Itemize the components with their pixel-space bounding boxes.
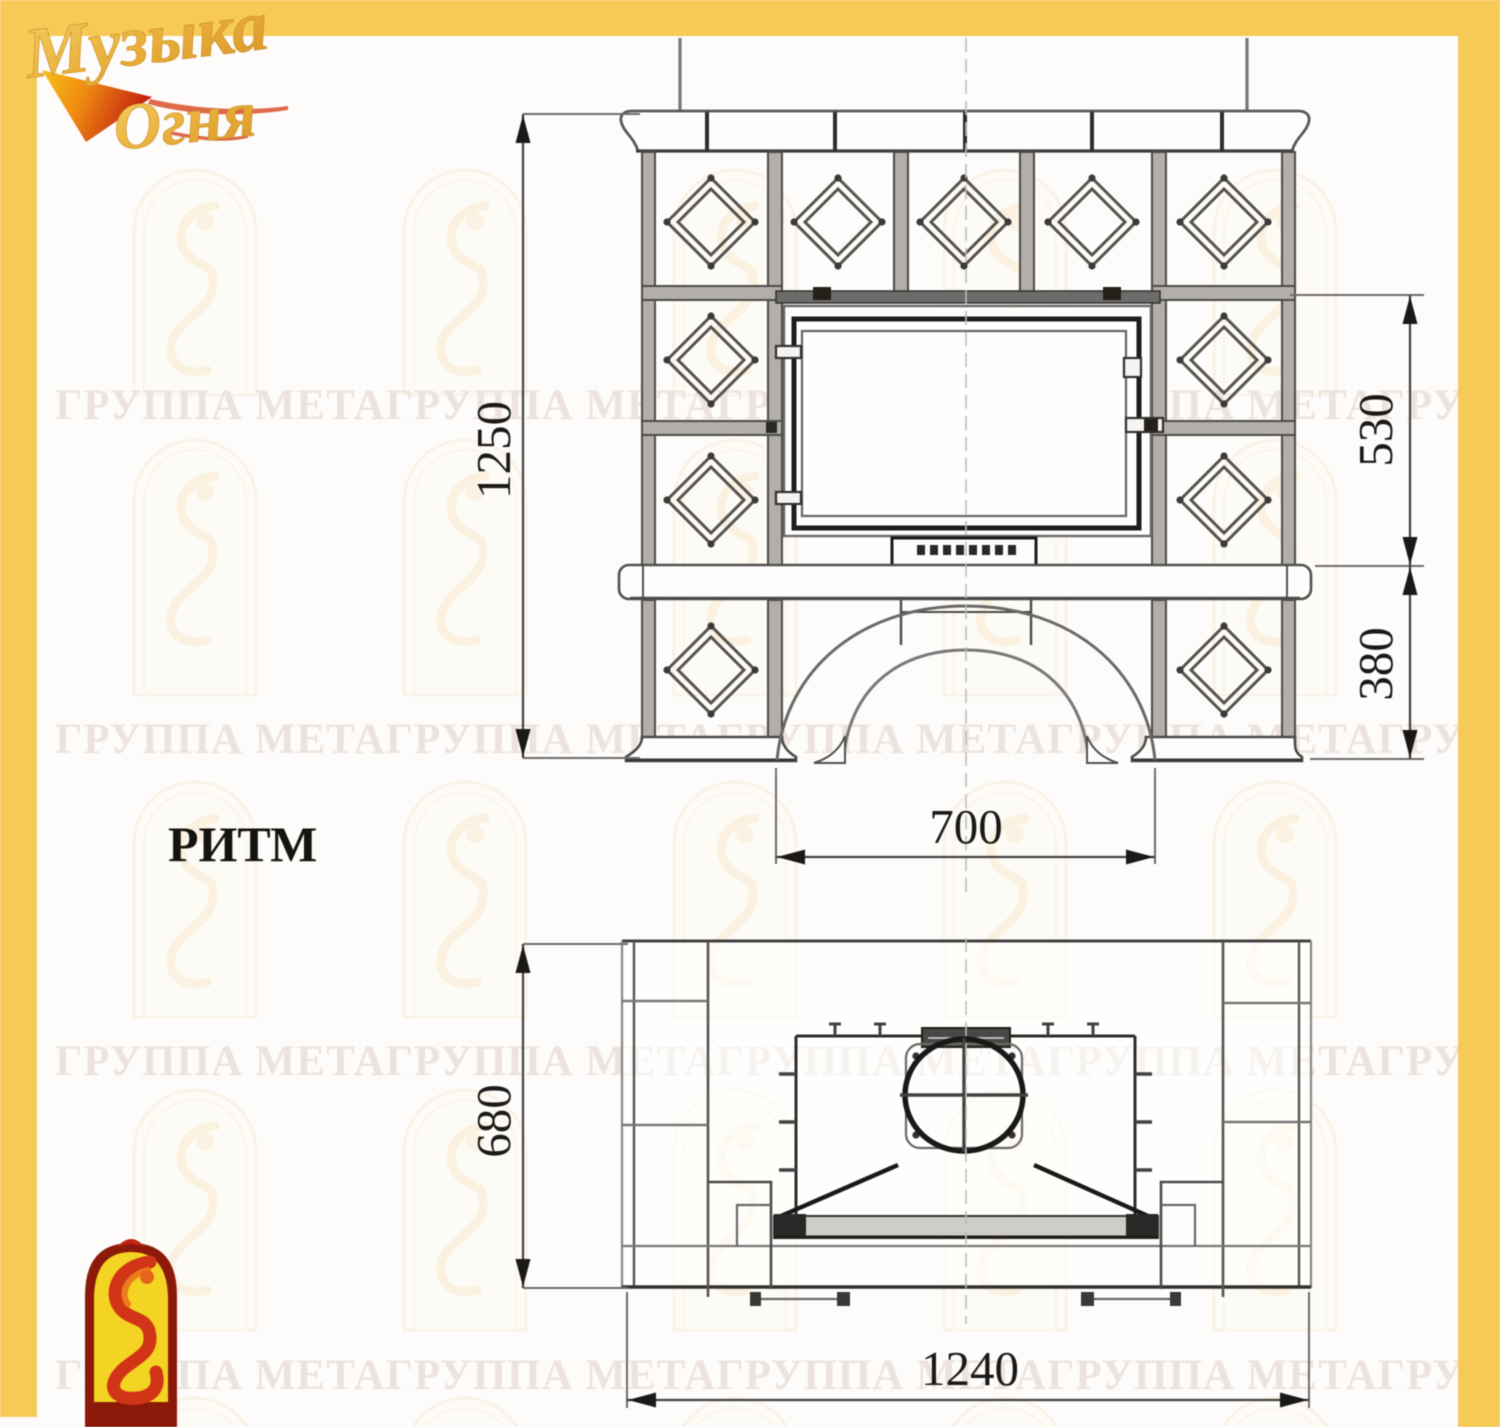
svg-text:Огня: Огня <box>110 77 260 165</box>
svg-text:РИТМ: РИТМ <box>168 816 317 872</box>
svg-text:680: 680 <box>466 1084 521 1158</box>
svg-text:700: 700 <box>929 799 1003 854</box>
svg-text:530: 530 <box>1348 393 1403 467</box>
svg-text:380: 380 <box>1348 627 1403 701</box>
svg-text:1240: 1240 <box>921 1341 1019 1396</box>
svg-text:ГРУППА МЕТАГРУППА МЕТАГРУППА М: ГРУППА МЕТАГРУППА МЕТАГРУППА МЕТАГРУППА … <box>55 1352 1500 1399</box>
svg-text:1250: 1250 <box>466 401 521 499</box>
